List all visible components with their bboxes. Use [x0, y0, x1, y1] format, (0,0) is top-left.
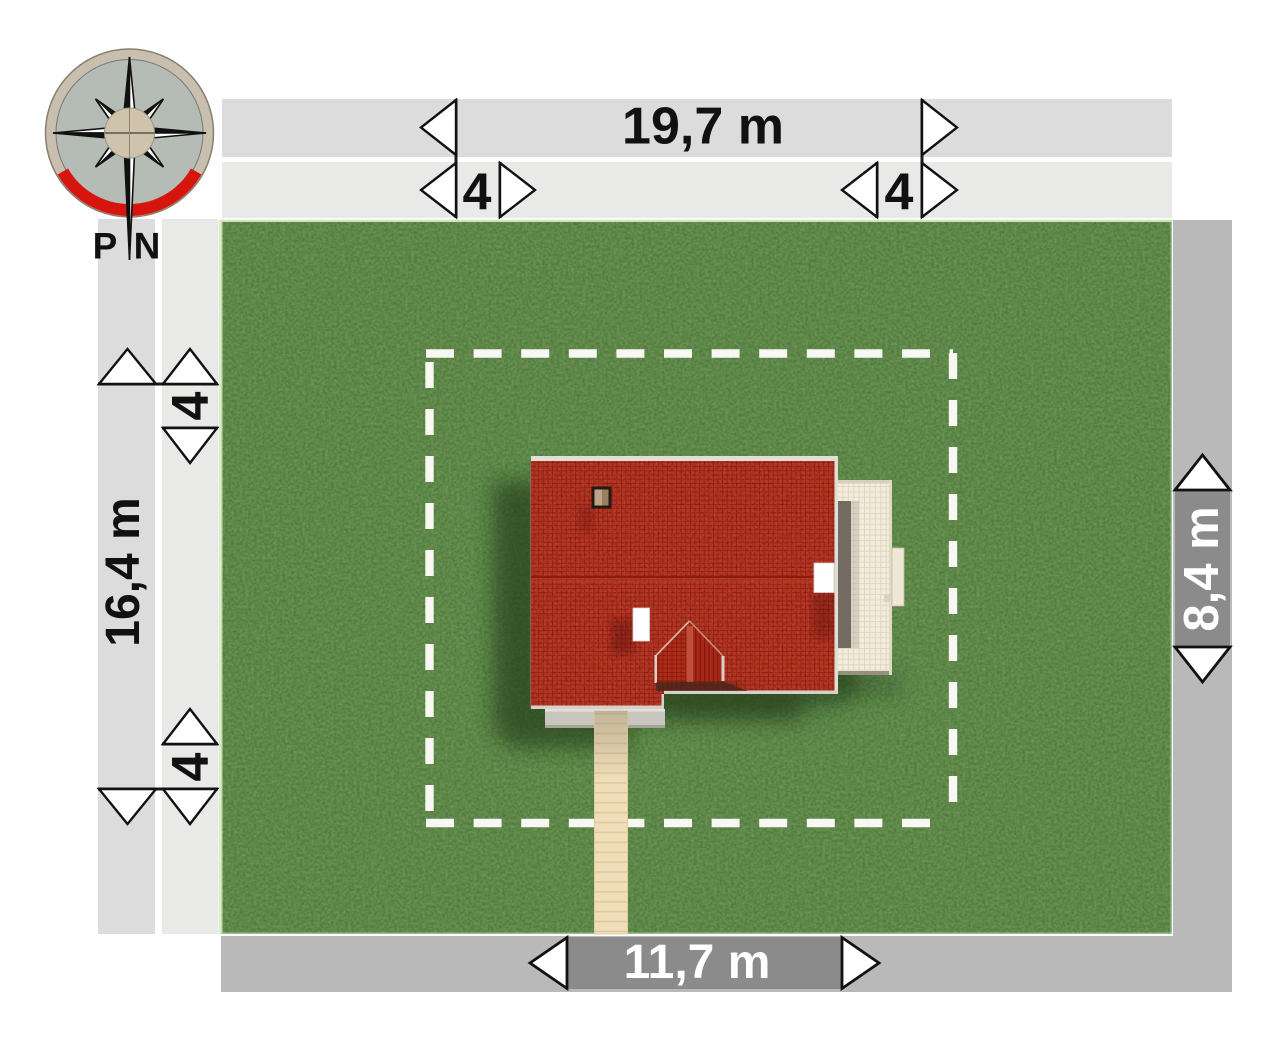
- svg-text:11,7 m: 11,7 m: [624, 936, 771, 989]
- svg-text:19,7 m: 19,7 m: [622, 98, 784, 156]
- svg-text:P: P: [93, 226, 118, 267]
- svg-text:8,4 m: 8,4 m: [1175, 506, 1229, 631]
- svg-text:4: 4: [162, 752, 220, 781]
- svg-text:4: 4: [885, 164, 914, 222]
- svg-text:4: 4: [162, 391, 220, 420]
- svg-text:N: N: [134, 226, 161, 267]
- svg-text:16,4 m: 16,4 m: [97, 497, 150, 646]
- svg-text:4: 4: [463, 164, 492, 222]
